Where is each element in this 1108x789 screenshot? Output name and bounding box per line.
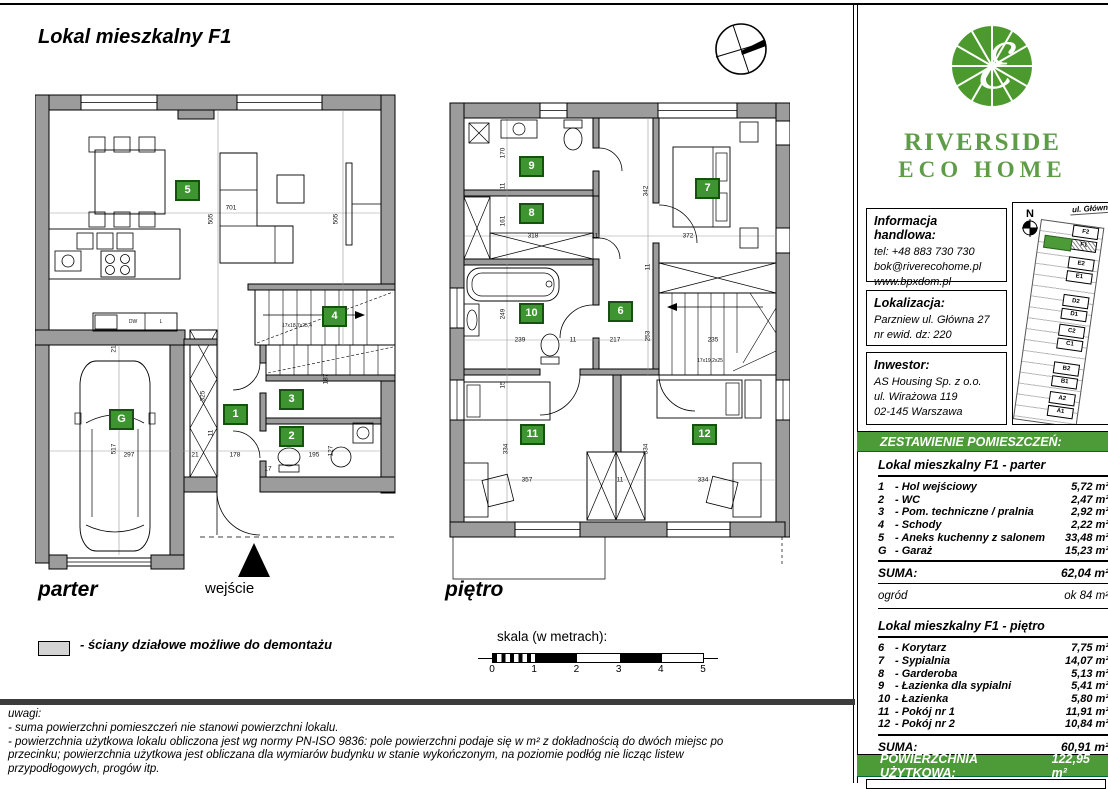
siteplan-unit: F2: [1072, 225, 1099, 240]
scale-tick: 1: [531, 664, 537, 675]
dimension-label: 178: [230, 452, 241, 459]
siteplan-unit: D2: [1062, 294, 1089, 309]
siteplan-unit: E1: [1066, 270, 1093, 285]
dimension-label: 342: [643, 186, 650, 197]
dimension-label: 11: [592, 233, 599, 240]
entrance-arrow-icon: [238, 543, 270, 577]
scale-segment: [662, 654, 703, 662]
scale-bar: [492, 653, 704, 663]
row-number: 8: [878, 668, 895, 681]
row-name: WC: [895, 494, 1071, 507]
dimension-label: 505: [208, 214, 215, 225]
schedule-header-label: ZESTAWIENIE POMIESZCZEŃ:: [880, 435, 1062, 449]
text-line: www.bpxdom.pl: [874, 275, 999, 290]
room-badge: 12: [692, 424, 717, 445]
row-area: 5,41 m²: [1071, 680, 1108, 693]
row-number: 4: [878, 519, 895, 532]
north-letter: N: [1021, 209, 1039, 219]
scale-segment: [493, 654, 535, 662]
sidebar: ℰ RIVERSIDE ECO HOME Informacja handlowa…: [857, 0, 1108, 783]
dimension-label: 249: [500, 309, 507, 320]
room-badge: 1: [223, 404, 248, 425]
dimension-label: 334: [503, 444, 510, 455]
location-heading: Lokalizacja:: [874, 296, 999, 310]
dimension-label: 334: [643, 444, 650, 455]
text-line: ul. Wirażowa 119: [874, 390, 999, 405]
row-name: Łazienka dla sypialni: [895, 680, 1071, 693]
floorplan-sheet: { "title": "Lokal mieszkalny F1", "label…: [0, 0, 1108, 783]
row-name: Sypialnia: [895, 655, 1065, 668]
table-row: 4Schody2,22 m²: [878, 519, 1108, 532]
scale-tick: 0: [489, 664, 495, 675]
row-name: Łazienka: [895, 693, 1071, 706]
text-line: nr ewid. dz: 220: [874, 328, 999, 343]
garden-label: ogród: [878, 590, 907, 603]
dimension-label: DW: [129, 319, 137, 325]
dimension-label: 357: [522, 477, 533, 484]
street-label: ul. Główna: [1069, 202, 1108, 215]
dimension-label: 325: [200, 391, 207, 402]
siteplan-unit: E2: [1067, 256, 1094, 271]
room-badge: 7: [695, 178, 720, 199]
siteplan-strip: F2F1E2E1D2D1C2C1B2B1A2A1: [1013, 219, 1104, 425]
dimension-label: 21: [111, 345, 118, 352]
text-line: przecinku; powierzchnia użytkowa jest ob…: [8, 749, 848, 763]
room-badge: 4: [322, 306, 347, 327]
row-number: 7: [878, 655, 895, 668]
dimension-label: 318: [528, 233, 539, 240]
scale-segment: [535, 654, 577, 662]
page-title: Lokal mieszkalny F1: [38, 26, 231, 49]
row-number: 3: [878, 506, 895, 519]
row-name: Schody: [895, 519, 1071, 532]
row-number: G: [878, 545, 895, 558]
row-area: 7,75 m²: [1071, 642, 1108, 655]
total-area-label: POWIERZCHNIA UŻYTKOWA:: [880, 752, 1052, 780]
row-area: 33,48 m²: [1065, 532, 1108, 545]
row-number: 5: [878, 532, 895, 545]
suma-label: SUMA:: [878, 566, 917, 580]
row-area: 10,84 m²: [1065, 718, 1108, 731]
text-line: 02-145 Warszawa: [874, 405, 999, 420]
dimension-label: 334: [698, 477, 709, 484]
room-badge: 9: [519, 156, 544, 177]
label-pietro: piętro: [445, 578, 503, 602]
scale-ticks: 012345: [492, 664, 704, 676]
investor-heading: Inwestor:: [874, 358, 999, 372]
dimension-label: 217: [610, 337, 621, 344]
table-row: 11Pokój nr 111,91 m²: [878, 706, 1108, 719]
notes-heading: uwagi:: [8, 708, 848, 722]
row-number: 10: [878, 693, 895, 706]
scale-segment: [577, 654, 619, 662]
row-area: 2,47 m²: [1071, 494, 1108, 507]
dimension-label: 11: [500, 183, 507, 190]
brand-logo: ℰ RIVERSIDE ECO HOME: [857, 14, 1108, 183]
brand-name-line1: RIVERSIDE: [857, 129, 1108, 157]
schedule-table: Lokal mieszkalny F1 - parter 1Hol wejści…: [857, 452, 1108, 754]
row-area: 5,72 m²: [1071, 481, 1108, 494]
text-line: tel: +48 883 730 730: [874, 245, 999, 260]
svg-text:ℰ: ℰ: [973, 30, 1016, 103]
row-number: 6: [878, 642, 895, 655]
dimension-label: L: [160, 319, 163, 325]
row-area: 5,80 m²: [1071, 693, 1108, 706]
dimension-label: 187: [323, 374, 330, 385]
row-number: 12: [878, 718, 895, 731]
room-badge: 10: [519, 303, 544, 324]
siteplan-unit: B2: [1053, 361, 1080, 376]
row-area: 15,23 m²: [1065, 545, 1108, 558]
total-area-value: 122,95 m²: [1052, 752, 1107, 780]
garden-highlight: [1043, 234, 1073, 251]
room-badge: 11: [520, 424, 545, 445]
schedule-pietro-title: Lokal mieszkalny F1 - piętro: [878, 619, 1108, 633]
next-section-box: [866, 779, 1106, 789]
dimension-label: 195: [309, 452, 320, 459]
room-badge: 6: [608, 301, 633, 322]
contact-heading: Informacja handlowa:: [874, 214, 999, 242]
legend-swatch: [38, 641, 70, 656]
scale-title: skala (w metrach):: [497, 629, 607, 644]
dimension-label: 17x18,7x25,4: [282, 323, 312, 329]
row-name: Garaż: [895, 545, 1065, 558]
row-area: 14,07 m²: [1065, 655, 1108, 668]
dimension-label: 239: [515, 337, 526, 344]
table-row: 3Pom. techniczne / pralnia2,92 m²: [878, 506, 1108, 519]
room-badge: 3: [279, 389, 304, 410]
row-number: 2: [878, 494, 895, 507]
dimension-label: 161: [500, 216, 507, 227]
dimension-label: 235: [708, 337, 719, 344]
siteplan: ul. Główna N F2F1E2E1D2D1C2C1B2B1A2A1: [1012, 202, 1108, 425]
bottom-rule: [0, 699, 855, 705]
dimension-label: 11: [570, 337, 577, 344]
schedule-header: ZESTAWIENIE POMIESZCZEŃ:: [857, 431, 1108, 452]
siteplan-unit: B1: [1051, 375, 1078, 390]
investor-box: Inwestor: AS Housing Sp. z o.o.ul. Wiraż…: [866, 352, 1007, 425]
text-line: przypodłogowych, progów itp.: [8, 763, 848, 777]
siteplan-unit: A1: [1047, 404, 1074, 419]
table-row: GGaraż15,23 m²: [878, 545, 1108, 558]
scale-tick: 2: [574, 664, 580, 675]
table-row: 6Korytarz7,75 m²: [878, 642, 1108, 655]
plan-parter-drawing: [35, 93, 397, 590]
scale-tick: 5: [700, 664, 706, 675]
siteplan-unit: C2: [1058, 324, 1085, 339]
contact-box: Informacja handlowa: tel: +48 883 730 73…: [866, 208, 1007, 282]
table-row: 2WC2,47 m²: [878, 494, 1108, 507]
table-row: 12Pokój nr 210,84 m²: [878, 718, 1108, 731]
row-name: Hol wejściowy: [895, 481, 1071, 494]
text-line: bok@riverecohome.pl: [874, 260, 999, 275]
text-line: - suma powierzchni pomieszczeń nie stano…: [8, 722, 848, 736]
entrance-label: wejście: [205, 580, 254, 597]
notes: uwagi: - suma powierzchni pomieszczeń ni…: [8, 708, 848, 777]
room-badge: G: [109, 409, 134, 430]
dimension-label: 17x19,2x25: [697, 358, 723, 364]
dimension-label: 253: [645, 331, 652, 342]
row-area: 5,13 m²: [1071, 668, 1108, 681]
dimension-label: 15: [500, 381, 507, 388]
scale-tick: 4: [658, 664, 664, 675]
dimension-label: 517: [111, 444, 118, 455]
table-row: 5Aneks kuchenny z salonem33,48 m²: [878, 532, 1108, 545]
brand-name-line2: ECO HOME: [857, 157, 1108, 183]
scale-segment: [620, 654, 662, 662]
row-area: 2,22 m²: [1071, 519, 1108, 532]
siteplan-unit: C1: [1056, 337, 1083, 352]
siteplan-unit: A2: [1049, 391, 1076, 406]
row-number: 11: [878, 706, 895, 719]
row-number: 9: [878, 680, 895, 693]
row-name: Pokój nr 1: [895, 706, 1066, 719]
dimension-label: 372: [683, 233, 694, 240]
dimension-label: 17: [264, 466, 271, 473]
text-line: AS Housing Sp. z o.o.: [874, 375, 999, 390]
total-area-bar: POWIERZCHNIA UŻYTKOWA: 122,95 m²: [857, 754, 1108, 777]
legend-label: - ściany działowe możliwe do demontażu: [80, 637, 332, 652]
row-name: Korytarz: [895, 642, 1071, 655]
siteplan-unit: D1: [1060, 307, 1087, 322]
brand-logo-icon: ℰ: [917, 14, 1067, 122]
row-area: 2,92 m²: [1071, 506, 1108, 519]
table-row: 9Łazienka dla sypialni5,41 m²: [878, 680, 1108, 693]
location-box: Lokalizacja: Parzniew ul. Główna 27nr ew…: [866, 290, 1007, 346]
scale-tick: 3: [616, 664, 622, 675]
row-name: Garderoba: [895, 668, 1071, 681]
table-row: 8Garderoba5,13 m²: [878, 668, 1108, 681]
table-row: 7Sypialnia14,07 m²: [878, 655, 1108, 668]
suma-value: 62,04 m²: [1061, 566, 1108, 580]
dimension-label: 505: [333, 214, 340, 225]
garden-row: ogród ok 84 m²: [878, 590, 1108, 603]
garden-value: ok 84 m²: [1064, 590, 1108, 603]
room-badge: 2: [279, 426, 304, 447]
north-indicator-icon: [1021, 219, 1039, 237]
dimension-label: 297: [124, 452, 135, 459]
room-badge: 8: [519, 203, 544, 224]
label-parter: parter: [38, 578, 98, 602]
dimension-label: 11: [617, 477, 624, 484]
compass-icon: [712, 20, 770, 78]
dimension-label: 701: [226, 205, 237, 212]
row-area: 11,91 m²: [1066, 706, 1108, 719]
schedule-parter-title: Lokal mieszkalny F1 - parter: [878, 458, 1108, 472]
dimension-label: 21: [191, 452, 198, 459]
row-name: Aneks kuchenny z salonem: [895, 532, 1065, 545]
table-row: 1Hol wejściowy5,72 m²: [878, 481, 1108, 494]
row-name: Pokój nr 2: [895, 718, 1065, 731]
table-row: 10Łazienka5,80 m²: [878, 693, 1108, 706]
siteplan-unit: F1: [1070, 238, 1097, 253]
room-badge: 5: [175, 180, 200, 201]
row-number: 1: [878, 481, 895, 494]
dimension-label: 170: [500, 148, 507, 159]
row-name: Pom. techniczne / pralnia: [895, 506, 1071, 519]
dimension-label: 11: [208, 430, 215, 437]
suma-row-parter: SUMA: 62,04 m²: [878, 566, 1108, 580]
plan-pietro: 9871061112170111613181137234224925311239…: [445, 93, 790, 590]
dimension-label: 11: [645, 264, 652, 271]
text-line: - powierzchnia użytkowa lokalu obliczona…: [8, 736, 848, 750]
north-indicator: N: [1021, 209, 1039, 239]
plan-parter: 54132G7015055052132551718712711297211781…: [35, 93, 397, 590]
text-line: Parzniew ul. Główna 27: [874, 313, 999, 328]
dimension-label: 127: [328, 446, 335, 457]
